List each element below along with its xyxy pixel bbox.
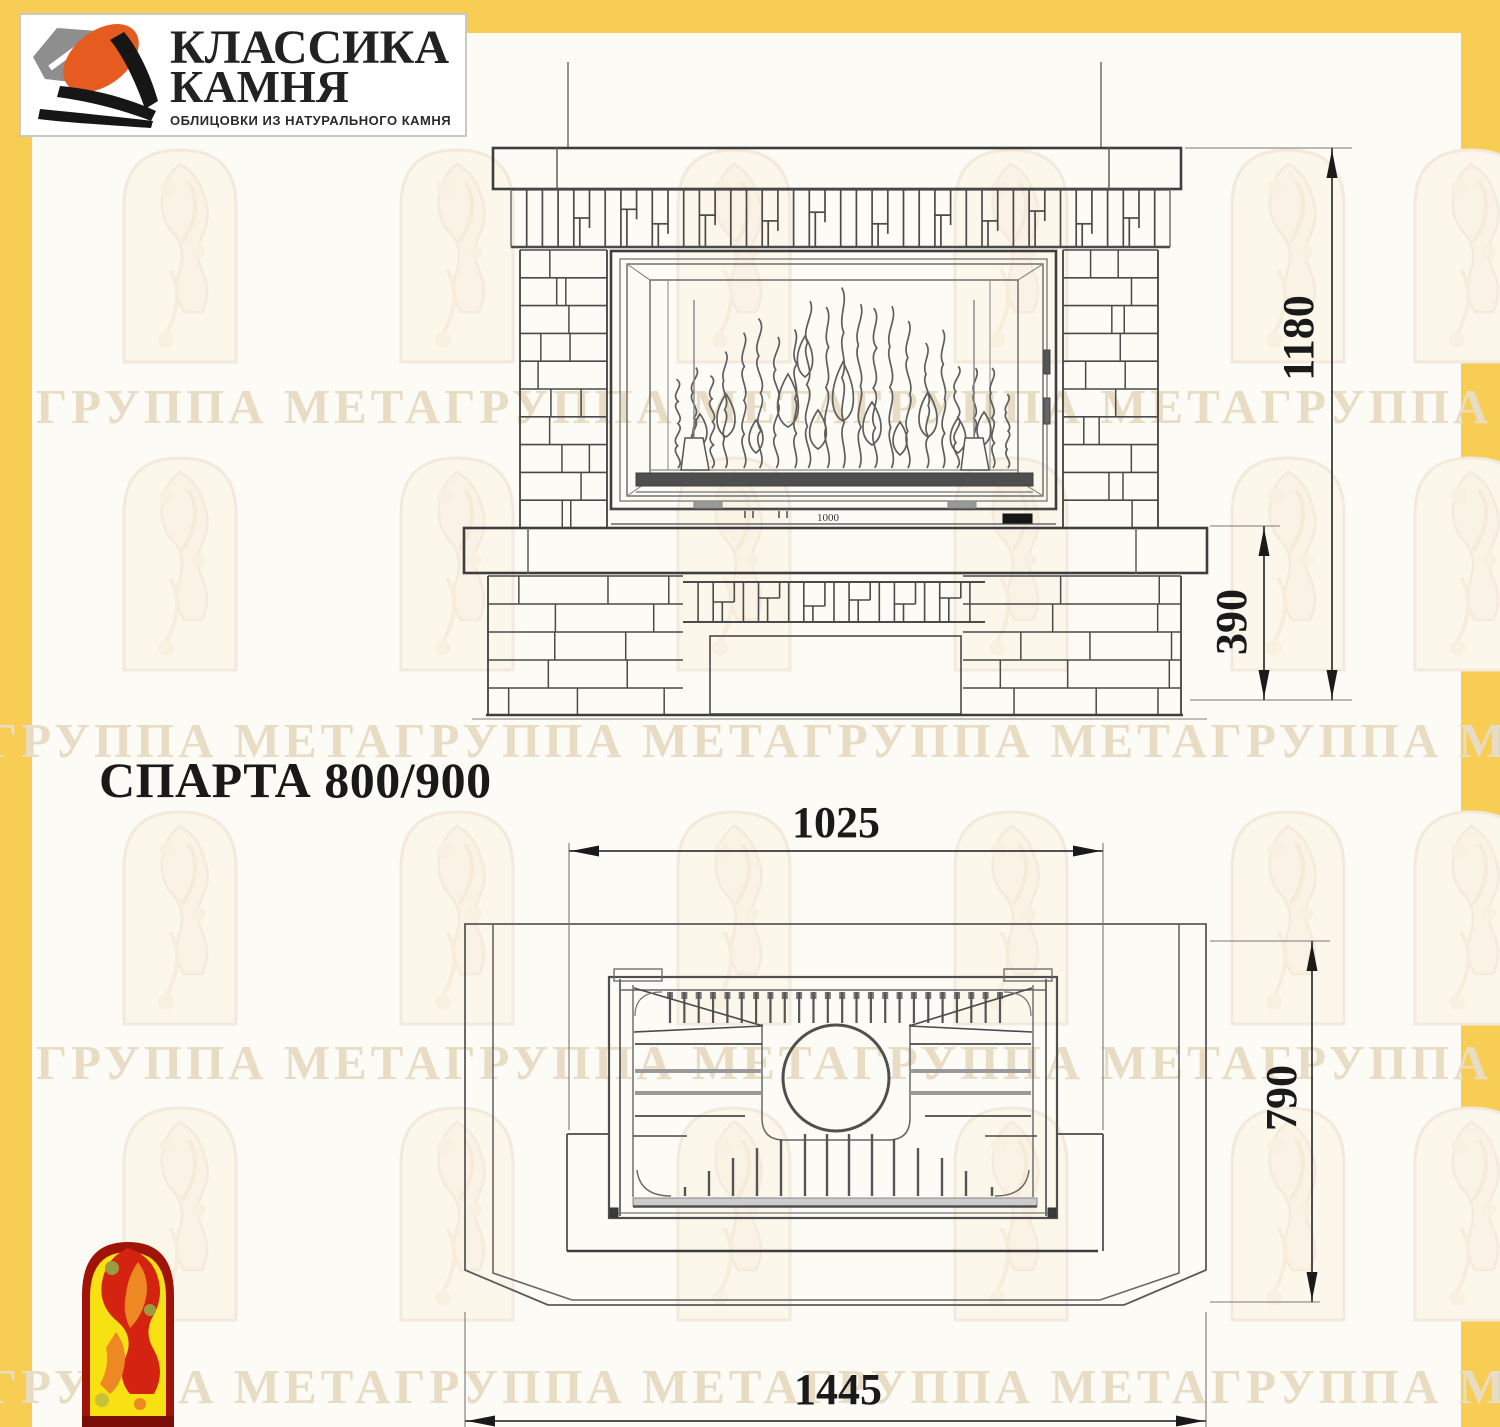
svg-text:390: 390 xyxy=(1207,589,1256,655)
svg-text:ГРУППА МЕТАГРУППА МЕТАГРУППА М: ГРУППА МЕТАГРУППА МЕТАГРУППА МЕТАГРУППА … xyxy=(36,379,1500,434)
svg-text:790: 790 xyxy=(1257,1065,1306,1131)
svg-text:1000: 1000 xyxy=(817,512,840,524)
svg-text:КАМНЯ: КАМНЯ xyxy=(170,61,349,112)
svg-text:1025: 1025 xyxy=(792,798,880,847)
svg-text:ОБЛИЦОВКИ ИЗ НАТУРАЛЬНОГО КАМН: ОБЛИЦОВКИ ИЗ НАТУРАЛЬНОГО КАМНЯ xyxy=(170,113,451,128)
svg-text:1445: 1445 xyxy=(794,1365,882,1414)
svg-text:1180: 1180 xyxy=(1274,295,1323,381)
svg-text:ГРУППА МЕТАГРУППА МЕТАГРУППА М: ГРУППА МЕТАГРУППА МЕТАГРУППА МЕТАГРУППА … xyxy=(0,1359,1500,1414)
svg-text:СПАРТА 800/900: СПАРТА 800/900 xyxy=(99,752,492,808)
